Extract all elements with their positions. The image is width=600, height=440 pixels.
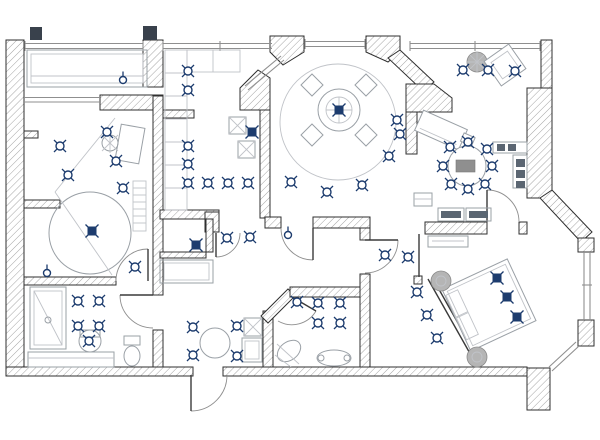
spotlight-icon <box>391 114 403 126</box>
spotlight-icon <box>479 178 491 190</box>
wall-unit-a-shape <box>497 144 505 151</box>
wall-iw6b <box>360 274 370 367</box>
bedside-sphere-shape <box>467 347 487 367</box>
wall-dining-stub-right <box>406 112 417 154</box>
spotlight-icon <box>182 140 194 152</box>
wall-stub-a <box>24 131 38 138</box>
spotlight-icon <box>421 309 433 321</box>
wall-corner-bottom-right <box>527 368 550 410</box>
square-fixture-body <box>503 293 512 302</box>
wall-iw2 <box>24 277 116 285</box>
spotlight-icon <box>187 349 199 361</box>
facade-mark <box>30 27 42 40</box>
wall-unit-a-shape <box>508 144 516 151</box>
spotlight-icon <box>379 249 391 261</box>
wall-iw5a <box>425 222 487 234</box>
spotlight-icon <box>431 332 443 344</box>
spotlight-icon <box>509 65 521 77</box>
sconce-body <box>120 77 127 84</box>
wall-iw1 <box>153 96 163 295</box>
facade-mark <box>143 26 157 40</box>
floor-plan-canvas <box>0 0 600 440</box>
wall-unit-b-shape <box>516 159 525 167</box>
wall-unit-b-shape <box>516 170 525 178</box>
wall-corner-top-right <box>541 40 552 90</box>
spotlight-icon <box>129 261 141 273</box>
square-fixture-body <box>192 241 201 250</box>
spotlight-icon <box>93 295 105 307</box>
wall-dining-left <box>260 110 270 218</box>
spotlight-icon <box>402 251 414 263</box>
spotlight-icon <box>334 317 346 329</box>
wall-left <box>6 40 24 376</box>
spotlight-icon <box>72 295 84 307</box>
wall-iw4a <box>265 217 281 228</box>
sconce-body <box>44 270 51 277</box>
wall-stub-b <box>24 200 60 208</box>
spotlight-icon <box>482 64 494 76</box>
wall-bay-block-b <box>578 320 594 346</box>
spotlight-icon <box>110 155 122 167</box>
spotlight-icon <box>462 183 474 195</box>
spotlight-icon <box>244 231 256 243</box>
floor-plan-page <box>0 0 600 440</box>
spotlight-icon <box>187 321 199 333</box>
wall-closet-bottom <box>160 252 206 258</box>
spotlight-icon <box>117 182 129 194</box>
spotlight-icon <box>486 160 498 172</box>
spotlight-icon <box>312 317 324 329</box>
sconce-body <box>285 232 292 239</box>
wall-pier-top <box>143 40 163 87</box>
spotlight-icon <box>54 140 66 152</box>
spotlight-icon <box>437 160 449 172</box>
wall-corridor-nub <box>414 276 422 284</box>
spotlight-icon <box>394 128 406 140</box>
square-fixture-body <box>88 227 97 236</box>
bedside-sphere-shape <box>431 271 451 291</box>
wall-iw1b <box>153 330 163 367</box>
wall-closet-right <box>206 219 213 252</box>
square-fixture-body <box>513 313 522 322</box>
spotlight-icon <box>231 350 243 362</box>
spotlight-icon <box>411 286 423 298</box>
spotlight-icon <box>445 178 457 190</box>
wall-kitchen-stub <box>163 110 194 118</box>
square-fixture-body <box>248 128 257 137</box>
spotlight-icon <box>182 177 194 189</box>
wall-bay-block-a <box>578 238 594 252</box>
wall-pier-right <box>527 88 552 198</box>
spotlight-icon <box>321 186 333 198</box>
oval-table-shape <box>456 160 475 172</box>
spotlight-icon <box>242 177 254 189</box>
wall-iw5b <box>519 222 527 234</box>
spotlight-icon <box>83 335 95 347</box>
spotlight-icon <box>182 158 194 170</box>
spotlight-icon <box>312 297 324 309</box>
tv-unit-shape <box>441 211 461 218</box>
spotlight-icon <box>285 176 297 188</box>
spotlight-icon <box>93 320 105 332</box>
spotlight-icon <box>334 297 346 309</box>
spotlight-icon <box>383 150 395 162</box>
wall-bottom-right <box>223 367 527 376</box>
wall-wc2-top <box>290 287 360 297</box>
spotlight-icon <box>457 64 469 76</box>
square-fixture-body <box>335 106 344 115</box>
bedside-sphere <box>467 347 487 367</box>
tv-unit-shape <box>469 211 488 218</box>
washing-machine <box>244 318 262 336</box>
facade-mark-shape <box>30 27 42 40</box>
square-fixture-body <box>493 274 502 283</box>
spotlight-icon <box>221 232 233 244</box>
spotlight-icon <box>72 320 84 332</box>
wall-bottom-left <box>6 367 193 376</box>
spotlight-icon <box>202 177 214 189</box>
wall-iw6a <box>360 228 370 240</box>
spotlight-icon <box>356 179 368 191</box>
spotlight-icon <box>222 177 234 189</box>
spotlight-icon <box>231 320 243 332</box>
facade-mark-shape <box>143 26 157 40</box>
kitchen-stool-2 <box>238 141 255 158</box>
wall-unit-b-shape <box>516 181 525 188</box>
kitchen-stool-1 <box>229 117 246 134</box>
bedside-sphere <box>431 271 451 291</box>
spotlight-icon <box>182 84 194 96</box>
spotlight-icon <box>182 65 194 77</box>
spotlight-icon <box>481 143 493 155</box>
spotlight-icon <box>101 126 113 138</box>
wall-iw4b <box>313 217 370 228</box>
spotlight-icon <box>62 169 74 181</box>
spotlight-icon <box>444 141 456 153</box>
spotlight-icon <box>291 296 303 308</box>
spotlight-icon <box>462 136 474 148</box>
